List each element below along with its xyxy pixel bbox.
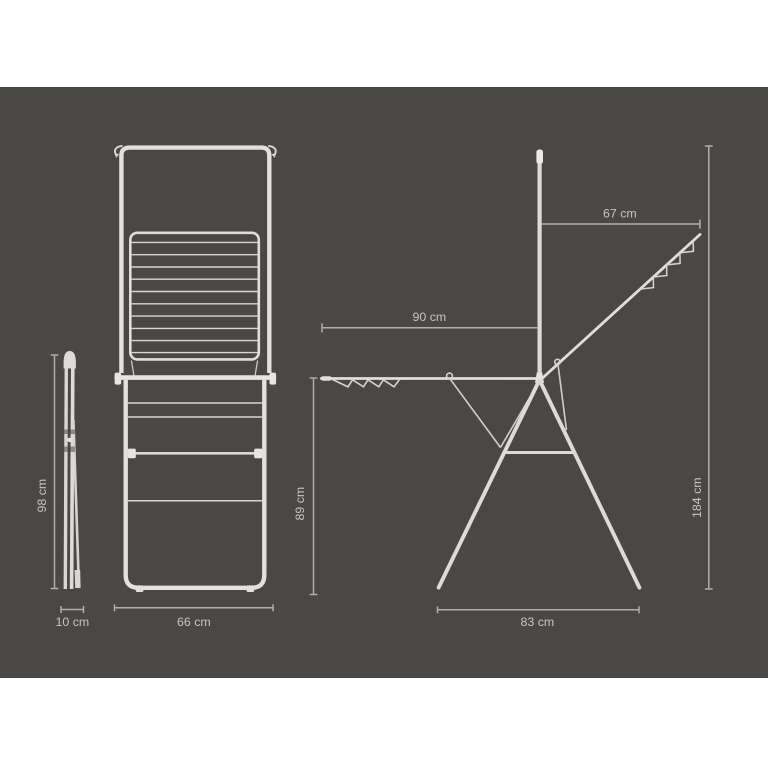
svg-text:98 cm: 98 cm xyxy=(35,479,49,513)
svg-text:10 cm: 10 cm xyxy=(56,615,90,629)
svg-text:89 cm: 89 cm xyxy=(293,487,307,521)
svg-text:66 cm: 66 cm xyxy=(177,615,211,629)
svg-text:67 cm: 67 cm xyxy=(603,207,637,221)
svg-text:83 cm: 83 cm xyxy=(521,615,555,629)
svg-text:184 cm: 184 cm xyxy=(690,477,704,518)
svg-text:90 cm: 90 cm xyxy=(413,310,447,324)
